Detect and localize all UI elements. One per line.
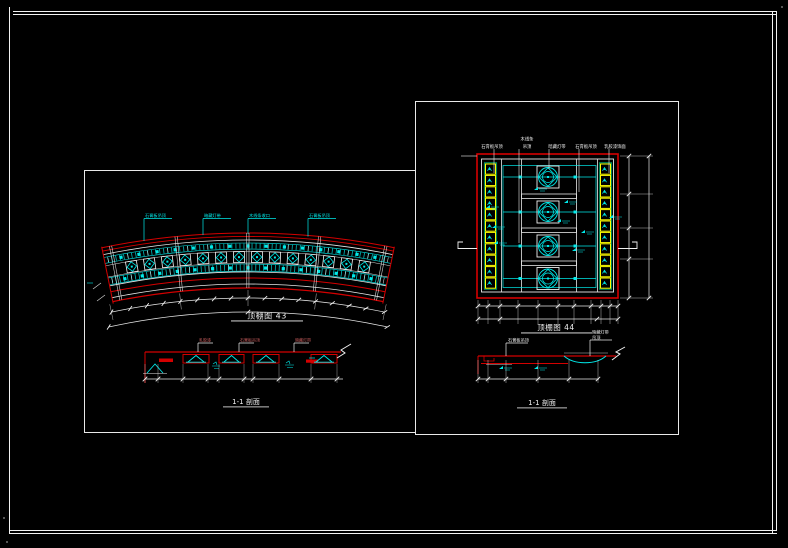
plan-callout: 木线条 xyxy=(521,136,535,143)
section-dimensions xyxy=(143,364,343,383)
divider-bars xyxy=(522,194,577,266)
section-break-symbol xyxy=(612,347,625,360)
plan-callout: 木线条收口 xyxy=(249,212,270,219)
section-break-symbol xyxy=(337,344,351,358)
section-callout: 暗藏灯带 xyxy=(295,337,311,343)
plan-callout: 暗藏灯带 xyxy=(204,212,221,219)
page-border-top-inner xyxy=(13,14,776,15)
plan-callout: 石膏板吊顶 xyxy=(481,143,503,150)
page-border-bottom-inner xyxy=(9,533,777,534)
cad-canvas[interactable]: 石膏板吊顶 暗藏灯带 木线条收口 石膏板吊顶 顶棚图 43 xyxy=(0,0,788,548)
detail-annotation-mark xyxy=(534,366,547,370)
viewport-square-ceiling-plan[interactable]: 石膏板吊顶 木线条 吊顶 暗藏灯带 石膏板吊顶 乳胶漆饰面 顶棚图 44 xyxy=(415,101,679,435)
section-red-block xyxy=(159,359,173,363)
plot-mark xyxy=(781,6,783,8)
plan-red-border xyxy=(477,154,618,298)
page-border-right-inner xyxy=(776,11,777,530)
plan-title: 顶棚图 43 xyxy=(247,311,287,321)
left-end-marks xyxy=(87,283,105,301)
section-detail: 乳胶漆 石膏板吊顶 暗藏灯带 1-1 剖面 xyxy=(143,337,351,408)
page-border-left xyxy=(9,7,10,534)
plan-title-underline xyxy=(521,333,592,334)
side-panel-strips xyxy=(484,163,611,289)
page-border-bottom-outer xyxy=(9,530,777,531)
curved-ceiling-plan-drawing: 石膏板吊顶 暗藏灯带 木线条收口 石膏板吊顶 顶棚图 43 xyxy=(85,171,418,432)
plan-callout: 暗藏灯带 xyxy=(548,143,566,150)
plot-mark xyxy=(3,517,5,519)
plan-callout: 石膏板吊顶 xyxy=(575,143,597,150)
plan-title: 顶棚图 44 xyxy=(537,322,574,332)
page-border-top-outer xyxy=(13,11,776,12)
plan-callout: 乳胶漆饰面 xyxy=(604,143,626,150)
plot-mark xyxy=(6,541,8,543)
section-title: 1-1 剖面 xyxy=(528,398,556,407)
plan-callout: 吊顶 xyxy=(523,144,532,150)
square-ceiling-plan-drawing: 石膏板吊顶 木线条 吊顶 暗藏灯带 石膏板吊顶 乳胶漆饰面 顶棚图 44 xyxy=(416,102,678,434)
section-callout-leaders xyxy=(198,343,309,352)
section-title-underline xyxy=(517,408,567,409)
cove-curve xyxy=(564,356,606,363)
section-callout: 石膏板吊顶 xyxy=(508,337,530,344)
detail-annotation-mark xyxy=(499,366,512,370)
plan-callout-leaders xyxy=(144,219,336,242)
section-title-underline xyxy=(223,407,269,408)
section-callout: 乳胶漆 xyxy=(199,337,211,343)
section-detail: 石膏板吊顶 暗藏灯带 吊顶 1-1 剖面 xyxy=(476,329,625,409)
plan-callout: 石膏板吊顶 xyxy=(145,212,167,219)
plan-callout-leaders xyxy=(494,149,609,243)
plan-callout: 石膏板吊顶 xyxy=(309,212,331,219)
viewport-curved-ceiling-plan[interactable]: 石膏板吊顶 暗藏灯带 木线条收口 石膏板吊顶 顶棚图 43 xyxy=(84,170,419,433)
section-lamps xyxy=(147,356,334,374)
plan-title-underline xyxy=(231,321,303,322)
plan-vertical-lines xyxy=(502,159,598,292)
page-border-right-outer xyxy=(772,11,773,533)
section-title: 1-1 剖面 xyxy=(232,397,260,406)
section-callout: 石膏板吊顶 xyxy=(240,337,260,343)
